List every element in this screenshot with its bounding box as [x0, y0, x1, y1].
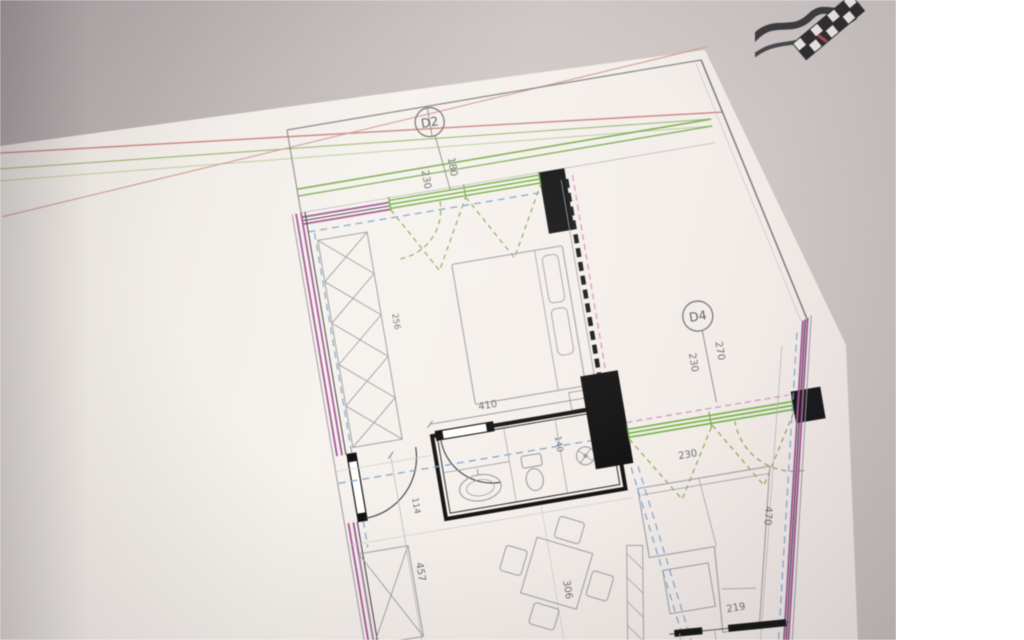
dim-bathroom-top: 410 [477, 399, 498, 413]
chair [586, 570, 614, 601]
chair [554, 516, 585, 544]
dim-right-wall: 470 [761, 506, 773, 526]
pillow [551, 307, 575, 356]
floor-plan: D2 230 180 [0, 0, 896, 640]
bedroom: 256 [301, 166, 615, 470]
left-wall [292, 211, 404, 640]
window-d2-label: D2 [420, 113, 440, 131]
white-margin [896, 0, 1024, 640]
terrace-pink-dash [627, 395, 789, 422]
dim-bathroom-inner: 140 [552, 435, 565, 453]
terrace [0, 24, 807, 449]
chair [528, 602, 559, 630]
corner-column [791, 387, 826, 424]
sofa [638, 466, 796, 640]
sink [456, 466, 503, 505]
bottom-wall [669, 614, 801, 640]
window-d4-width: 270 [712, 341, 726, 362]
dining-set [487, 504, 626, 640]
window-d4-height: 230 [686, 352, 700, 373]
dim-living-width: 230 [678, 448, 699, 462]
window-d4-opening [629, 411, 805, 506]
window-d2-height: 230 [419, 169, 433, 190]
tv-cabinet [627, 545, 644, 640]
right-wall [718, 315, 874, 640]
dim-bottom-wall: 219 [726, 601, 747, 615]
window-d4-callout: D4 230 270 [678, 298, 734, 406]
window-d2-callout: D2 230 180 [409, 104, 462, 194]
bed [452, 245, 596, 426]
structural-column [580, 370, 633, 469]
bathroom: 410 140 [329, 380, 628, 536]
terrace-red-line [0, 32, 723, 233]
dim-457-line [387, 452, 445, 640]
window-d4 [627, 398, 794, 442]
dim-dining-line: 306 [560, 579, 574, 600]
dim-hallway: 114 [409, 497, 422, 515]
guide-line-blue [339, 437, 615, 484]
photo-area: D2 230 180 [0, 0, 896, 640]
chair [499, 545, 527, 576]
window-d2-opening [391, 184, 552, 276]
window-d4-label: D4 [688, 307, 708, 325]
corner-object [755, 0, 896, 80]
screen-photo: D2 230 180 [0, 0, 1024, 640]
pillow [542, 254, 566, 304]
diagonal-wall [701, 50, 807, 328]
dim-wardrobe: 256 [389, 313, 402, 331]
coffee-table [663, 563, 716, 614]
terrace-red-line [0, 47, 715, 217]
dim-left-wall: 457 [413, 562, 427, 583]
toilet [521, 453, 547, 492]
window-d2-width: 180 [445, 157, 459, 178]
